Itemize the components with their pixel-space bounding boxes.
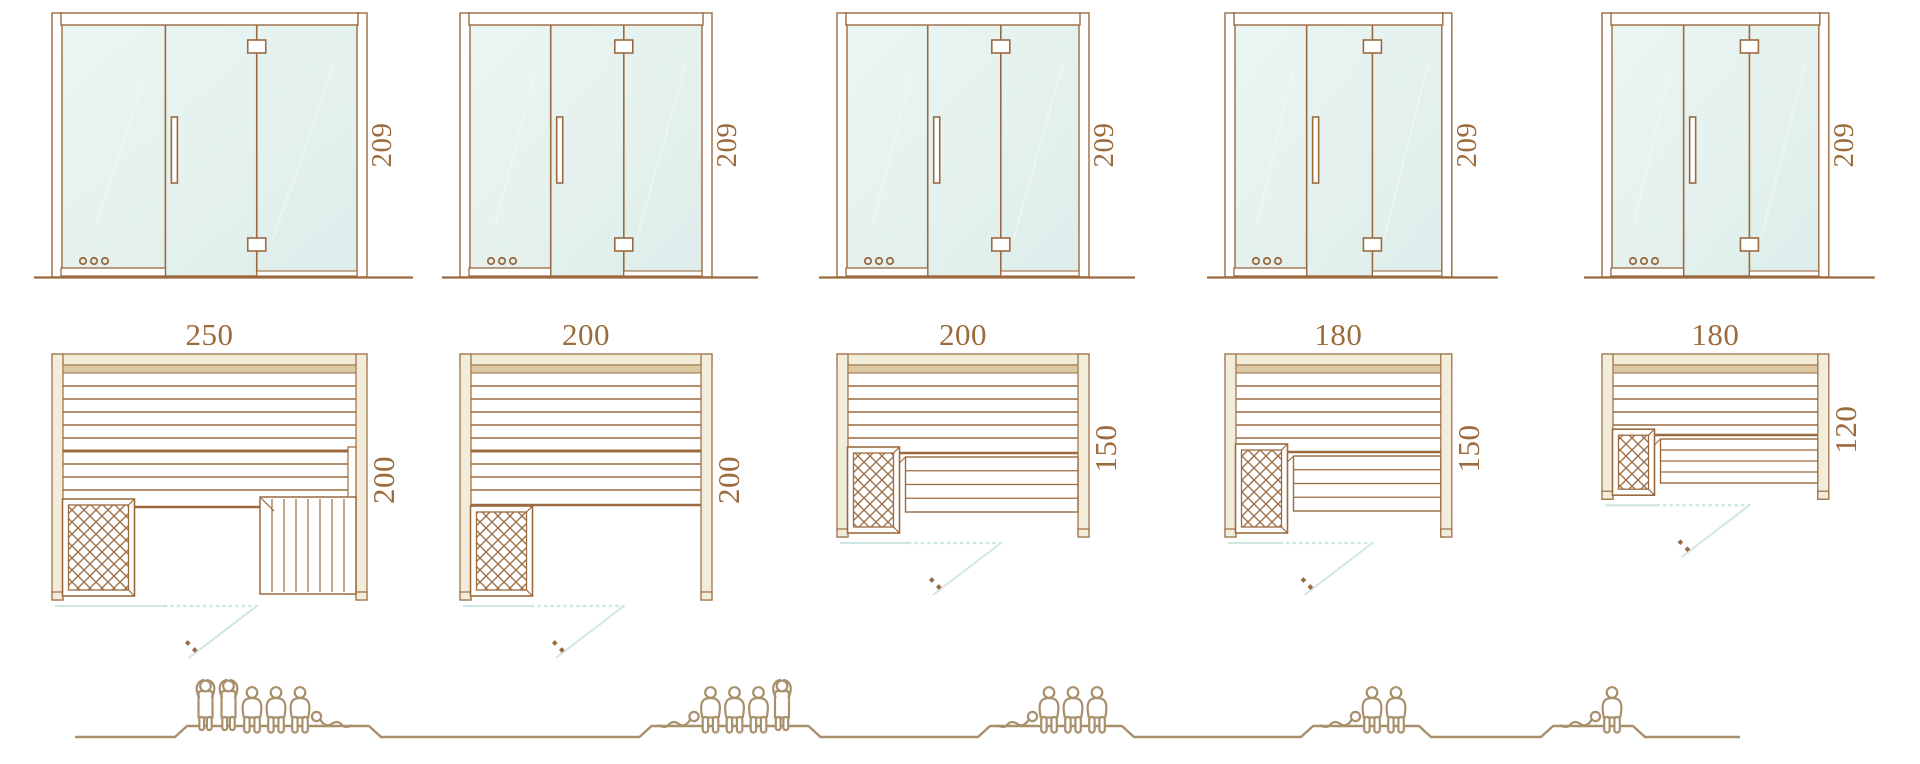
wall-end-cap bbox=[1225, 529, 1236, 537]
threshold-right bbox=[1372, 271, 1441, 276]
door-leaf-handle bbox=[929, 577, 935, 583]
bench-backrest bbox=[848, 365, 1078, 373]
threshold-right bbox=[624, 271, 702, 276]
diagram-canvas: 2092502002092002002092001502091801502091… bbox=[0, 0, 1920, 764]
open-door-leaf bbox=[1681, 505, 1749, 557]
wall-end-cap bbox=[356, 592, 367, 600]
glass-front bbox=[61, 24, 358, 276]
plan-view: 180150 bbox=[1225, 317, 1486, 595]
plan-width-label: 250 bbox=[186, 317, 234, 352]
door-frame-left-post bbox=[837, 13, 847, 277]
door-hinge-bottom bbox=[1363, 238, 1381, 251]
person-lying bbox=[1561, 712, 1601, 727]
threshold-left bbox=[846, 268, 928, 276]
door-frame-top bbox=[61, 13, 358, 25]
bench-backrest bbox=[63, 365, 356, 373]
person-standing bbox=[773, 680, 791, 730]
sauna-model-4: 209180150 bbox=[1207, 13, 1498, 595]
door-height-label: 209 bbox=[366, 123, 398, 168]
door-elevation: 209 bbox=[1584, 13, 1875, 278]
sauna-model-5: 209180120 bbox=[1584, 13, 1875, 557]
door-frame-top bbox=[469, 13, 703, 25]
plan-width-label: 200 bbox=[562, 317, 610, 352]
threshold-left bbox=[61, 268, 165, 276]
heater-grille bbox=[1242, 450, 1282, 527]
plan-back-wall bbox=[460, 354, 712, 365]
door-handle bbox=[934, 117, 940, 183]
door-hinge-bottom bbox=[615, 238, 633, 251]
plan-width-label: 200 bbox=[939, 317, 987, 352]
threshold-right bbox=[1749, 271, 1818, 276]
open-door-leaf bbox=[1304, 543, 1372, 595]
wall-end-cap bbox=[1602, 491, 1613, 499]
open-door-leaf bbox=[933, 543, 1001, 595]
door-hinge-top bbox=[1740, 40, 1758, 53]
threshold-right bbox=[257, 271, 357, 276]
wall-end-cap bbox=[837, 529, 848, 537]
plan-view: 200150 bbox=[837, 317, 1123, 595]
sauna-model-2: 209200200 bbox=[442, 13, 758, 658]
sauna-model-1: 209250200 bbox=[34, 13, 413, 658]
side-bench-corner bbox=[1655, 439, 1661, 445]
door-height-label: 209 bbox=[1828, 123, 1860, 168]
threshold-left bbox=[1234, 268, 1307, 276]
plan-depth-label: 150 bbox=[1451, 425, 1486, 473]
door-hinge-bottom bbox=[992, 238, 1010, 251]
sauna-sizes-diagram: 2092502002092002002092001502091801502091… bbox=[0, 0, 1920, 764]
door-handle bbox=[1690, 117, 1696, 183]
threshold-left bbox=[469, 268, 551, 276]
person-lying bbox=[312, 712, 352, 727]
heater-grille bbox=[69, 505, 129, 590]
door-leaf-handle bbox=[1301, 577, 1307, 583]
plan-back-wall bbox=[1225, 354, 1452, 365]
door-elevation: 209 bbox=[819, 13, 1135, 278]
capacity-group-1 bbox=[197, 680, 352, 733]
heater-grille bbox=[854, 453, 894, 527]
plan-back-wall bbox=[1602, 354, 1829, 365]
glass-front bbox=[1611, 24, 1820, 276]
plan-depth-label: 200 bbox=[711, 456, 746, 504]
door-hinge-bottom bbox=[1740, 238, 1758, 251]
person-lying bbox=[1321, 712, 1361, 727]
door-hinge-bottom bbox=[248, 238, 266, 251]
door-hinge-top bbox=[992, 40, 1010, 53]
wall-end-cap bbox=[1818, 491, 1829, 499]
side-bench-corner bbox=[900, 457, 906, 463]
wall-end-cap bbox=[52, 592, 63, 600]
plan-width-label: 180 bbox=[1691, 317, 1739, 352]
door-frame-left-post bbox=[52, 13, 62, 277]
plan-depth-label: 120 bbox=[1828, 406, 1863, 454]
door-elevation: 209 bbox=[442, 13, 758, 278]
door-handle bbox=[557, 117, 563, 183]
door-elevation: 209 bbox=[34, 13, 413, 278]
plan-depth-label: 200 bbox=[366, 456, 401, 504]
plan-width-label: 180 bbox=[1314, 317, 1362, 352]
capacity-group-2 bbox=[659, 680, 791, 733]
door-hinge-top bbox=[615, 40, 633, 53]
bench-backrest bbox=[1613, 365, 1818, 373]
plan-depth-label: 150 bbox=[1088, 425, 1123, 473]
plan-back-wall bbox=[52, 354, 367, 365]
door-leaf-handle bbox=[1678, 539, 1684, 545]
plan-view: 250200 bbox=[52, 317, 401, 658]
door-handle bbox=[1313, 117, 1319, 183]
door-hinge-top bbox=[1363, 40, 1381, 53]
plan-view: 180120 bbox=[1602, 317, 1863, 557]
door-leaf-handle bbox=[552, 640, 558, 646]
wall-end-cap bbox=[460, 592, 471, 600]
capacity-row bbox=[75, 680, 1740, 737]
door-handle bbox=[171, 117, 177, 183]
door-height-label: 209 bbox=[1451, 123, 1483, 168]
door-frame-left-post bbox=[1602, 13, 1612, 277]
open-door-leaf bbox=[189, 606, 257, 658]
bench-backrest bbox=[471, 365, 701, 373]
wall-end-cap bbox=[1441, 529, 1452, 537]
glass-front bbox=[469, 24, 703, 276]
threshold-right bbox=[1001, 271, 1079, 276]
wall-end-cap bbox=[701, 592, 712, 600]
door-height-label: 209 bbox=[1088, 123, 1120, 168]
plan-left-wall bbox=[1602, 354, 1613, 499]
plan-left-wall bbox=[837, 354, 848, 537]
door-leaf-handle bbox=[185, 640, 191, 646]
sauna-model-3: 209200150 bbox=[819, 13, 1135, 595]
glass-front bbox=[846, 24, 1080, 276]
heater-grille bbox=[477, 512, 527, 590]
threshold-left bbox=[1611, 268, 1684, 276]
door-elevation: 209 bbox=[1207, 13, 1498, 278]
plan-left-wall bbox=[1225, 354, 1236, 537]
door-frame-top bbox=[1234, 13, 1443, 25]
person-standing bbox=[220, 680, 238, 730]
plan-left-wall bbox=[460, 354, 471, 600]
person-lying bbox=[659, 712, 699, 727]
door-frame-top bbox=[1611, 13, 1820, 25]
plan-view: 200200 bbox=[460, 317, 746, 658]
door-frame-top bbox=[846, 13, 1080, 25]
plan-back-wall bbox=[837, 354, 1089, 365]
door-frame-left-post bbox=[1225, 13, 1235, 277]
wall-end-cap bbox=[1078, 529, 1089, 537]
door-hinge-top bbox=[248, 40, 266, 53]
person-lying bbox=[998, 712, 1038, 727]
bench-backrest bbox=[1236, 365, 1441, 373]
glass-front bbox=[1234, 24, 1443, 276]
side-bench-corner bbox=[1288, 456, 1294, 462]
heater-grille bbox=[1619, 435, 1649, 489]
capacity-ground-line bbox=[75, 726, 1740, 737]
open-door-leaf bbox=[556, 606, 624, 658]
person-standing bbox=[197, 680, 215, 730]
plan-left-wall bbox=[52, 354, 63, 600]
door-frame-left-post bbox=[460, 13, 470, 277]
door-height-label: 209 bbox=[711, 123, 743, 168]
